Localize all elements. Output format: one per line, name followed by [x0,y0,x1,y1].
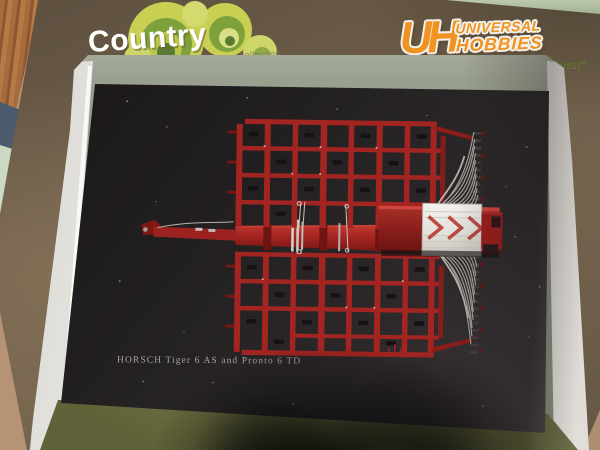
window-reflection-overlay [0,0,600,450]
uh-monogram: UH [399,14,456,61]
box-window: HORSCH Tiger 6 AS and Pronto 6 TD [0,0,600,450]
uh-brand-line2: HOBBIES [456,32,543,56]
boxed-model-photo: Country collection UH UNIVERSAL HOBBIES … [0,0,600,450]
